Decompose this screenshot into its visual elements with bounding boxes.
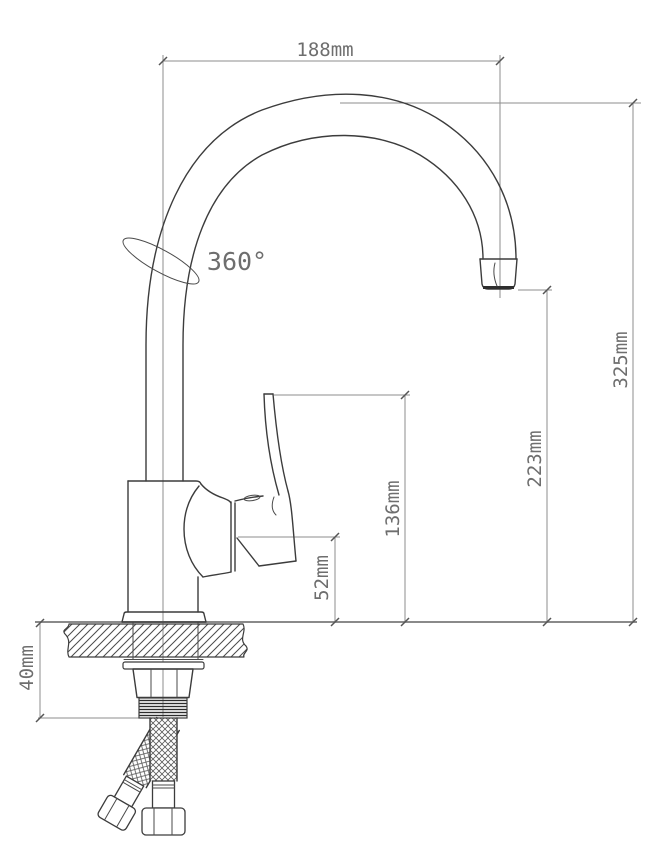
label-mounting-depth: 40mm xyxy=(16,645,38,691)
spout-arc xyxy=(118,94,517,481)
hose-nut-left xyxy=(142,808,185,835)
mounting-flange xyxy=(123,662,204,669)
spout-tip xyxy=(480,259,517,289)
label-swivel-angle: 360° xyxy=(207,247,267,276)
countertop-section xyxy=(64,624,247,657)
label-handle-height: 136mm xyxy=(382,480,404,537)
label-body-height: 52mm xyxy=(311,555,333,601)
handle xyxy=(235,394,296,566)
label-total-height: 325mm xyxy=(610,331,632,388)
faucet-body xyxy=(122,481,235,622)
faucet-technical-drawing: 188mm 360° 325mm 223mm 136mm 52mm 40mm xyxy=(0,0,665,857)
base-plate xyxy=(122,612,206,622)
label-spout-height: 223mm xyxy=(524,430,546,487)
threaded-shank xyxy=(139,698,187,718)
label-spout-reach: 188mm xyxy=(296,39,353,61)
supply-hoses xyxy=(97,716,185,835)
countertop xyxy=(64,624,247,657)
faucet-technical-drawing-page: 188mm 360° 325mm 223mm 136mm 52mm 40mm xyxy=(0,0,665,857)
